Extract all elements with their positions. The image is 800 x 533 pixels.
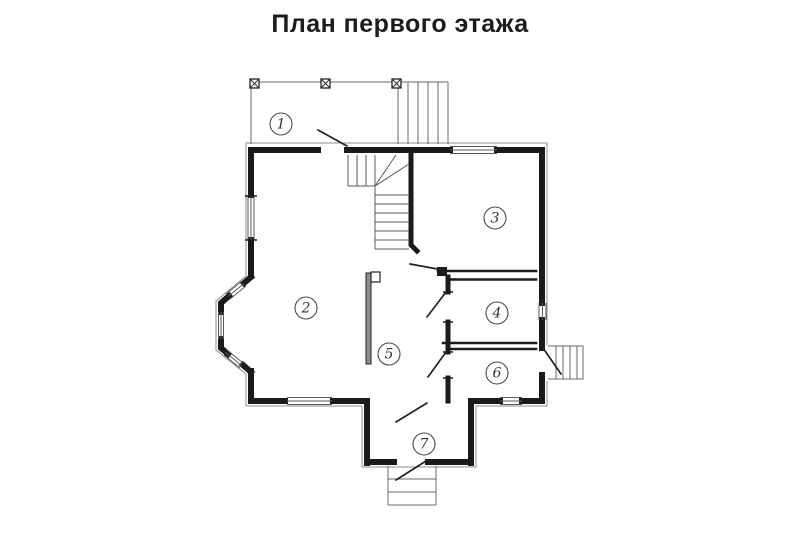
entrance-door-leaf [396,461,426,480]
svg-text:5: 5 [385,347,394,363]
room-label-7: 7 [413,433,435,455]
window-top [450,147,497,154]
stair-wall [411,152,417,251]
bay-window-2 [219,312,224,339]
staircase [348,155,409,249]
window-bottom-left [287,398,332,405]
window-bottom-right [500,398,522,405]
room-label-5: 5 [378,343,400,365]
terrace-column [250,79,259,88]
interior-partitions [411,152,453,401]
hall-partition-bar [366,272,380,364]
room-label-6: 6 [486,362,508,384]
doors [318,130,561,480]
svg-text:1: 1 [277,117,286,133]
terrace-column [392,79,401,88]
svg-text:6: 6 [493,366,502,382]
interior-walls [437,267,536,349]
svg-text:3: 3 [491,211,500,227]
entrance-steps [388,466,436,505]
svg-text:7: 7 [420,437,429,453]
side-exit-door-leaf [543,348,561,374]
room-label-3: 3 [484,207,506,229]
room6-door-leaf [428,352,446,377]
room-label-2: 2 [295,297,317,319]
room-label-1: 1 [270,113,292,135]
svg-text:2: 2 [301,301,311,317]
floor-plan-canvas: 1 2 3 4 5 6 7 [0,0,800,533]
stair-winders [375,155,409,186]
window-left [248,196,254,240]
vestibule-door-leaf [396,403,427,422]
room4-door-leaf [427,292,446,317]
svg-text:4: 4 [492,306,502,322]
front-door-leaf [318,130,347,146]
terrace-column [321,79,330,88]
terrace-steps [398,82,448,144]
room-label-4: 4 [486,302,508,324]
